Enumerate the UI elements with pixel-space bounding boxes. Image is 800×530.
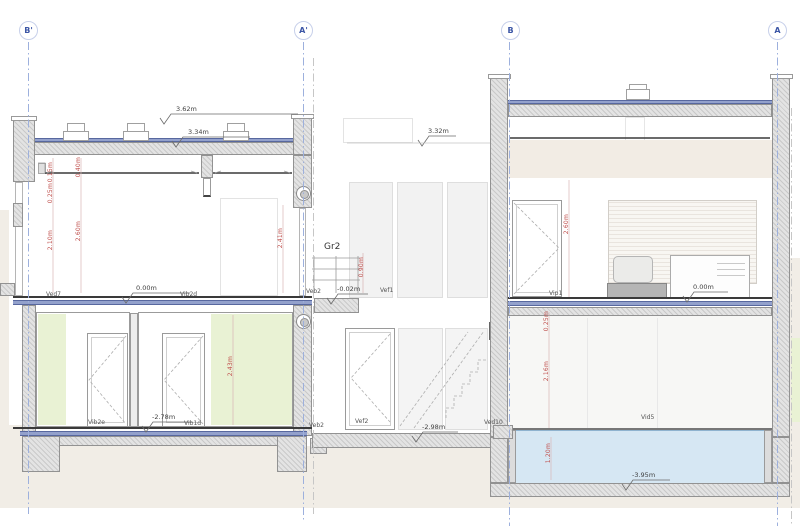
green-wall-right — [211, 314, 292, 425]
coping-left — [488, 74, 511, 79]
tag-vib2d: Vib2d — [180, 291, 197, 298]
floor-line-basement — [13, 427, 312, 429]
cabinet-drawer-line — [717, 275, 745, 276]
kitchen-counter — [607, 283, 667, 298]
cabinet — [670, 255, 750, 298]
level-mid-roof: 3.32m — [428, 127, 449, 135]
ground-right-green — [791, 338, 800, 422]
exterior-bracket — [0, 283, 15, 296]
tag-gr2: Gr2 — [324, 242, 340, 252]
ceiling-tick — [47, 171, 290, 173]
window-left — [15, 182, 23, 296]
tag-vib2e: Vib2e — [88, 419, 105, 426]
section-marker-b: B — [501, 21, 520, 40]
floor-slab-gf — [13, 300, 312, 305]
floor-line-gf — [508, 297, 772, 299]
roof-vent — [626, 89, 650, 100]
footing-left — [22, 436, 60, 472]
stair-panel-1 — [398, 328, 443, 430]
coping-left — [11, 116, 37, 121]
dim-0-90: 0.90m — [358, 257, 365, 277]
roof-slab — [508, 104, 772, 117]
roof-curb-base — [223, 131, 249, 141]
partition-wall — [130, 313, 138, 427]
pipe-section-lower — [296, 314, 311, 329]
green-wall-left — [38, 314, 66, 425]
ceiling-step — [38, 163, 46, 174]
wall-right — [772, 78, 790, 437]
mid-ground-slab — [312, 433, 493, 448]
dim-2-60: 2.60m — [75, 221, 82, 241]
mid-beam — [203, 178, 211, 197]
coping-right — [291, 114, 314, 119]
wall-left-deep — [490, 437, 508, 483]
level-check-icon — [418, 136, 456, 146]
basement-joint-line — [657, 318, 658, 428]
wall-left — [490, 78, 508, 437]
glass-panel-2 — [397, 182, 443, 298]
door-vef2 — [345, 328, 395, 430]
level-roof-top: 3.62m — [176, 105, 197, 113]
roof-slab — [33, 142, 295, 155]
section-marker-a-prime: A' — [294, 21, 313, 40]
section-marker-a: A — [768, 21, 787, 40]
background-door — [220, 198, 278, 296]
level-roof-low: 3.34m — [188, 128, 209, 136]
dim-1-20-pool: 1.20m — [545, 443, 552, 463]
footing-step — [493, 425, 513, 439]
level-gf-right: 0.00m — [693, 283, 714, 291]
pool-base-slab — [490, 483, 790, 497]
tag-vid5: Vid5 — [641, 414, 654, 421]
level-stair-bottom: -2.98m — [422, 423, 445, 431]
tag-vib1d: Vib1d — [184, 420, 201, 427]
mid-wall-upper — [201, 155, 213, 178]
entry-slab — [314, 298, 359, 313]
tag-vef2: Vef2 — [355, 418, 368, 425]
tag-vip1: Vip1 — [549, 290, 562, 297]
dim-0-25-right: 0.25m — [543, 311, 550, 331]
section-drawing: 3.62m 3.34m 3.32m 0.00m -0.02m 0.00m -2.… — [0, 0, 800, 530]
tag-ved10: Ved10 — [484, 419, 503, 426]
tag-vef1: Vef1 — [380, 287, 393, 294]
dim-2-43: 2.43m — [227, 356, 234, 376]
interior-wall-band — [508, 140, 772, 178]
level-basement-left: -2.78m — [152, 413, 175, 421]
background-volume — [343, 118, 413, 143]
dim-2-16-right: 2.16m — [543, 361, 550, 381]
glass-panel-3 — [447, 182, 488, 298]
wall-right-deep — [772, 437, 790, 483]
tag-ved7: Ved7 — [46, 291, 61, 298]
door-vip1 — [512, 200, 562, 297]
pool-wall-right — [764, 430, 772, 483]
tag-veb2-lf: Veb2 — [309, 422, 324, 429]
dim-2-41: 2.41m — [277, 228, 284, 248]
foundation-slab — [22, 436, 307, 446]
floor-slab-gf — [508, 301, 772, 306]
dim-0-15: 0.15m — [47, 162, 54, 182]
glass-panel-1 — [349, 182, 393, 298]
dim-2-60-right: 2.60m — [563, 214, 570, 234]
coping-right — [770, 74, 793, 79]
parapet-left — [13, 120, 35, 182]
door-vib2e — [87, 333, 128, 427]
stair-panel-2 — [445, 328, 488, 430]
roof-curb-base — [63, 131, 89, 141]
window-right — [299, 208, 306, 296]
cabinet-drawer-line — [717, 263, 745, 264]
parapet-right — [293, 118, 312, 155]
dim-2-10: 2.10m — [47, 230, 54, 250]
level-gf-left: 0.00m — [136, 284, 157, 292]
level-pool-bottom: -3.95m — [632, 471, 655, 479]
kitchen-hood — [613, 256, 653, 283]
cabinet-drawer-line — [717, 269, 745, 270]
pipe-section-upper — [296, 186, 311, 201]
window-head-box — [13, 203, 23, 227]
tag-veb2-gf: Veb2 — [306, 288, 321, 295]
roof-curb-base — [123, 131, 149, 141]
section-marker-b-prime: B' — [19, 21, 38, 40]
dim-0-25: 0.25m — [47, 183, 54, 203]
wall-left-lower — [22, 305, 36, 436]
level-entry: -0.02m — [337, 285, 360, 293]
basement-joint-line — [587, 318, 588, 428]
dim-0-40: 0.40m — [75, 157, 82, 177]
footing-right — [277, 436, 307, 472]
